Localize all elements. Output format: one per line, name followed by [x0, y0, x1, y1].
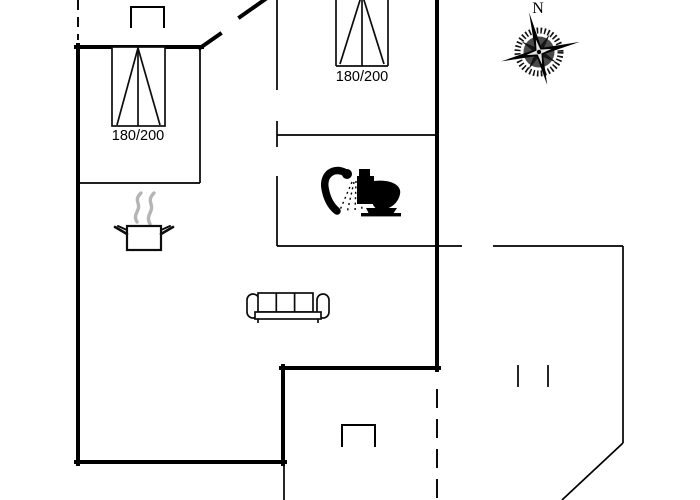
steam-left	[135, 193, 141, 222]
floor-plan-drawing: 180/200 180/200	[0, 0, 700, 500]
toilet-foot	[361, 213, 401, 216]
wall-entry-diagonal-lower	[200, 34, 220, 48]
toilet-bowl	[373, 181, 400, 210]
pot-body	[127, 226, 161, 250]
double-bed-icon	[336, 0, 388, 66]
wall-entry-diagonal-upper	[240, 0, 267, 17]
spray-ray	[347, 182, 354, 213]
sofa-icon	[247, 293, 329, 323]
terrace-corner-diagonal	[562, 443, 623, 500]
compass-center-dot	[537, 50, 541, 54]
sofa-seat-front	[255, 312, 321, 319]
shower-head	[342, 169, 352, 179]
spray-ray	[340, 182, 352, 210]
compass-rose-icon: N	[491, 0, 588, 94]
toilet-lid	[359, 169, 370, 177]
spray-ray	[355, 181, 356, 213]
steam-right	[148, 193, 154, 224]
step-top	[131, 7, 164, 28]
sofa-back-cushions	[258, 293, 313, 312]
bed2-duvet-right	[363, 0, 384, 64]
compass-north-label: N	[532, 0, 544, 17]
floor-plan-page: 180/200 180/200	[0, 0, 700, 500]
bed1-size-label: 180/200	[112, 128, 164, 144]
cooking-pot-icon	[115, 193, 173, 250]
toilet-icon	[357, 169, 401, 216]
double-bed-icon	[112, 47, 165, 126]
step-bottom	[342, 425, 375, 447]
bed2-duvet-left	[340, 0, 361, 64]
bed2-size-label: 180/200	[336, 69, 388, 85]
toilet-tank	[357, 176, 374, 204]
